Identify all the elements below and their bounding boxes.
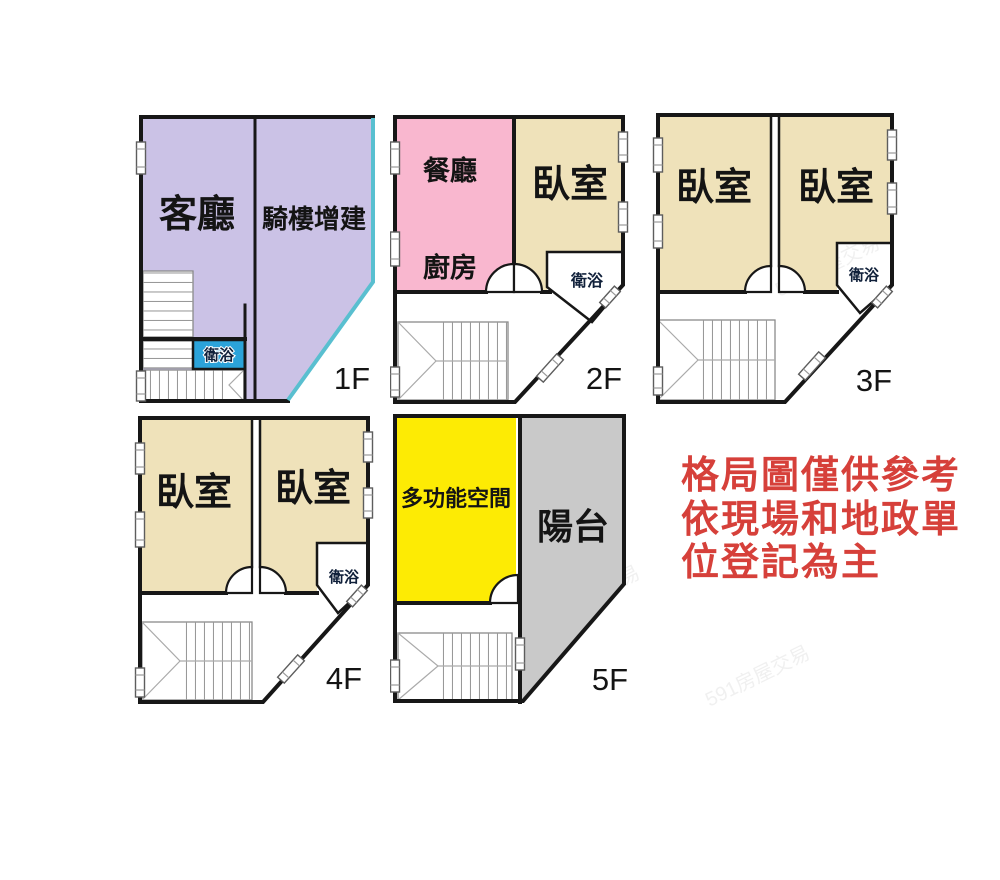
floor-label-4f: 4F xyxy=(326,661,362,696)
window-icon xyxy=(872,286,893,308)
window-icon xyxy=(391,367,400,397)
window-icon xyxy=(137,142,146,174)
window-icon xyxy=(654,215,663,248)
floor-plan-canvas: 591房屋交易 591房屋交易 591房屋交易 591房屋交易 591房屋交易 xyxy=(0,0,1000,880)
watermark-text: 591房屋交易 xyxy=(699,637,814,713)
floor-plan-4f: 臥室 臥室 衛浴 4F xyxy=(133,415,378,707)
staircase xyxy=(398,633,512,700)
window-icon xyxy=(391,660,400,692)
room-balcony xyxy=(522,416,624,700)
window-icon xyxy=(137,371,146,401)
room-label-bedroom-left: 臥室 xyxy=(156,471,232,514)
window-icon xyxy=(136,668,145,697)
window-icon xyxy=(347,585,368,607)
staircase xyxy=(398,322,508,400)
disclaimer-line: 位登記為主 xyxy=(681,542,961,586)
floor-plan-2f: 餐廳 廚房 臥室 衛浴 2F xyxy=(390,112,630,404)
window-icon xyxy=(888,183,897,214)
window-icon xyxy=(619,202,628,232)
floor-label-5f: 5F xyxy=(592,662,628,697)
room-label-dining: 餐廳 xyxy=(423,155,477,186)
room-label-bathroom: 衛浴 xyxy=(328,568,360,586)
window-icon xyxy=(654,138,663,172)
disclaimer-text: 格局圖僅供參考 依現場和地政單 位登記為主 xyxy=(681,455,961,586)
disclaimer-line: 格局圖僅供參考 xyxy=(681,455,961,499)
room-label-bedroom-left: 臥室 xyxy=(676,166,752,209)
window-icon xyxy=(799,352,826,380)
room-label-bathroom: 衛浴 xyxy=(848,266,880,284)
disclaimer-line: 依現場和地政單 xyxy=(681,499,961,543)
floor-plan-3f: 臥室 臥室 衛浴 3F xyxy=(650,108,900,405)
window-icon xyxy=(364,488,373,518)
window-icon xyxy=(278,655,305,683)
floor-plan-5f: 多功能空間 陽台 5F xyxy=(390,412,630,704)
window-icon xyxy=(654,367,663,395)
floor-label-2f: 2F xyxy=(586,361,622,396)
room-label-bathroom: 衛浴 xyxy=(570,271,604,290)
floor-label-3f: 3F xyxy=(856,363,892,398)
room-label-bedroom-right: 臥室 xyxy=(798,166,874,209)
room-label-living: 客廳 xyxy=(159,193,235,236)
window-icon xyxy=(537,354,564,382)
staircase xyxy=(142,622,252,700)
staircase xyxy=(658,320,775,400)
window-icon xyxy=(136,443,145,474)
room-label-balcony: 陽台 xyxy=(537,506,609,547)
room-label-multi: 多功能空間 xyxy=(401,486,511,511)
floor-label-1f: 1F xyxy=(334,361,370,396)
room-label-arcade: 騎樓增建 xyxy=(262,204,366,234)
floor-plan-1f: 客廳 騎樓增建 衛浴 1F xyxy=(133,112,378,404)
window-icon xyxy=(364,432,373,462)
room-label-kitchen: 廚房 xyxy=(423,252,477,283)
room-label-bedroom-right: 臥室 xyxy=(275,467,351,510)
room-arcade xyxy=(255,117,373,401)
window-icon xyxy=(391,142,400,174)
window-icon xyxy=(391,232,400,266)
window-icon xyxy=(619,132,628,162)
window-icon xyxy=(516,638,525,670)
room-label-bathroom: 衛浴 xyxy=(203,346,235,364)
window-icon xyxy=(136,512,145,547)
room-label-bedroom: 臥室 xyxy=(532,163,608,206)
window-icon xyxy=(888,130,897,160)
